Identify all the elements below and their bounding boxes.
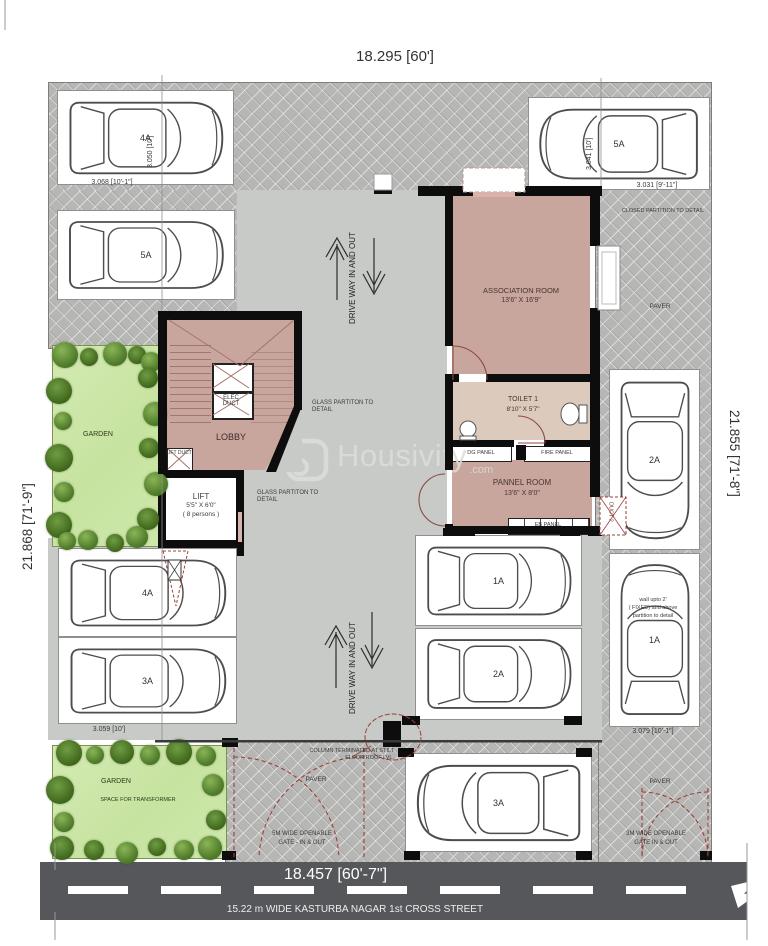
gate5-note-line2: GATE - IN & OUT (262, 840, 342, 847)
tree-icon (78, 530, 98, 550)
closed-partition-note: CLOSED PARTITION TO DETAIL (618, 208, 708, 215)
dg-panel-label: DG PANEL (452, 450, 510, 457)
pannel-room-size: 13'6" X 8'0" (462, 490, 582, 498)
tree-icon (54, 812, 74, 832)
tree-icon (206, 810, 226, 830)
eb-panel-label: EB PANEL (512, 522, 584, 529)
tree-icon (58, 532, 76, 550)
gate3-note-line2: GATE IN & OUT (616, 840, 696, 847)
dim-4a-width: 3.050 [10'] (147, 108, 155, 168)
lift-name: LIFT (168, 492, 234, 502)
wall-note-line1: wall upto 2' (614, 597, 692, 604)
tree-icon (86, 746, 104, 764)
dim-1a-length: 3.079 [10'-1"] (622, 728, 684, 736)
garden-label-upper: GARDEN (78, 431, 118, 439)
glass-partition-note-1: GLASS PARTITON TO DETAIL (312, 400, 374, 414)
glass-partition-note-2: GLASS PARTITON TO DETAIL (257, 490, 319, 504)
tree-icon (126, 526, 148, 548)
tree-icon (140, 745, 160, 765)
dim-right: 21.855 [71'-8"] (726, 410, 742, 570)
street-name: 15.22 m WIDE KASTURBA NAGAR 1st CROSS ST… (225, 904, 485, 916)
tree-icon (139, 438, 159, 458)
wall-note-line2: ( FIXED) and above (614, 605, 692, 612)
lift-capacity: ( 8 persons ) (168, 511, 234, 519)
driveway-label-upper: DRIVE WAY IN AND OUT (348, 212, 358, 324)
tree-icon (116, 842, 138, 864)
tree-icon (196, 746, 216, 766)
association-room-name: ASSOCIATION ROOM (458, 286, 584, 295)
garden-trees-layer (0, 0, 768, 946)
tree-icon (46, 378, 72, 404)
association-room-size: 13'6" X 16'9" (458, 297, 584, 305)
driveway-label-lower: DRIVE WAY IN AND OUT (348, 602, 358, 714)
garden-label-lower: GARDEN (96, 778, 136, 786)
tree-icon (143, 402, 167, 426)
dim-left: 21.868 [71'-9"] (20, 420, 36, 570)
tree-icon (174, 840, 194, 860)
tree-icon (198, 836, 222, 860)
tree-icon (50, 836, 74, 860)
elec-duct-label: ELEC DUCT (216, 395, 246, 407)
tree-icon (138, 368, 158, 388)
gate5-note-line1: 5M WIDE OPENABLE (262, 831, 342, 838)
dim-top: 18.295 [60'] (320, 48, 470, 66)
wall-note-line3: partition to detail (614, 613, 692, 620)
dim-road: 18.457 [60'-7"] (263, 865, 408, 884)
tree-icon (202, 774, 224, 796)
transformer-note: SPACE FOR TRANSFORMER (70, 797, 206, 804)
dim-5a-length: 3.031 [9'-11"] (624, 182, 690, 190)
toilet-size: 8'10" X 5'7" (488, 406, 558, 414)
tree-icon (110, 740, 134, 764)
tree-icon (54, 412, 72, 430)
tree-icon (148, 838, 166, 856)
tree-icon (52, 342, 78, 368)
paver-label-bottom-left: PAVER (298, 776, 334, 784)
gate3-note-line1: 3M WIDE OPENABLE (616, 831, 696, 838)
lift-size: 5'5" X 6'0" (168, 502, 234, 510)
tree-icon (56, 740, 82, 766)
tree-icon (80, 348, 98, 366)
dim-5a-width: 3.041 [10'] (586, 110, 594, 170)
tree-icon (166, 739, 192, 765)
paver-label-right-top: PAVER (643, 303, 677, 311)
column-note: COLUMN TERMINATED AT STILT FLOOR ROOF LV… (300, 748, 394, 761)
floor-plan-canvas: 4A5A5A4A3A1A2A2A1A3A Housivity .com (0, 0, 768, 946)
tree-icon (84, 840, 104, 860)
lobby-label: LOBBY (206, 432, 256, 443)
dim-3a-length: 3.059 [10'] (80, 726, 138, 734)
tree-icon (103, 342, 127, 366)
tree-icon (54, 482, 74, 502)
lift-duct-label: LIFT DUCT (166, 451, 192, 456)
paver-label-right-bottom: PAVER (643, 778, 677, 786)
duct2-label: DUCT 2 (607, 502, 614, 532)
pannel-room-name: PANNEL ROOM (462, 478, 582, 488)
tree-icon (144, 472, 168, 496)
tree-icon (45, 444, 73, 472)
fire-panel-label: FIRE PANEL (524, 450, 590, 457)
tree-icon (106, 534, 124, 552)
dim-4a-length: 3.068 [10'-1"] (80, 179, 144, 187)
toilet-name: TOILET 1 (488, 396, 558, 404)
